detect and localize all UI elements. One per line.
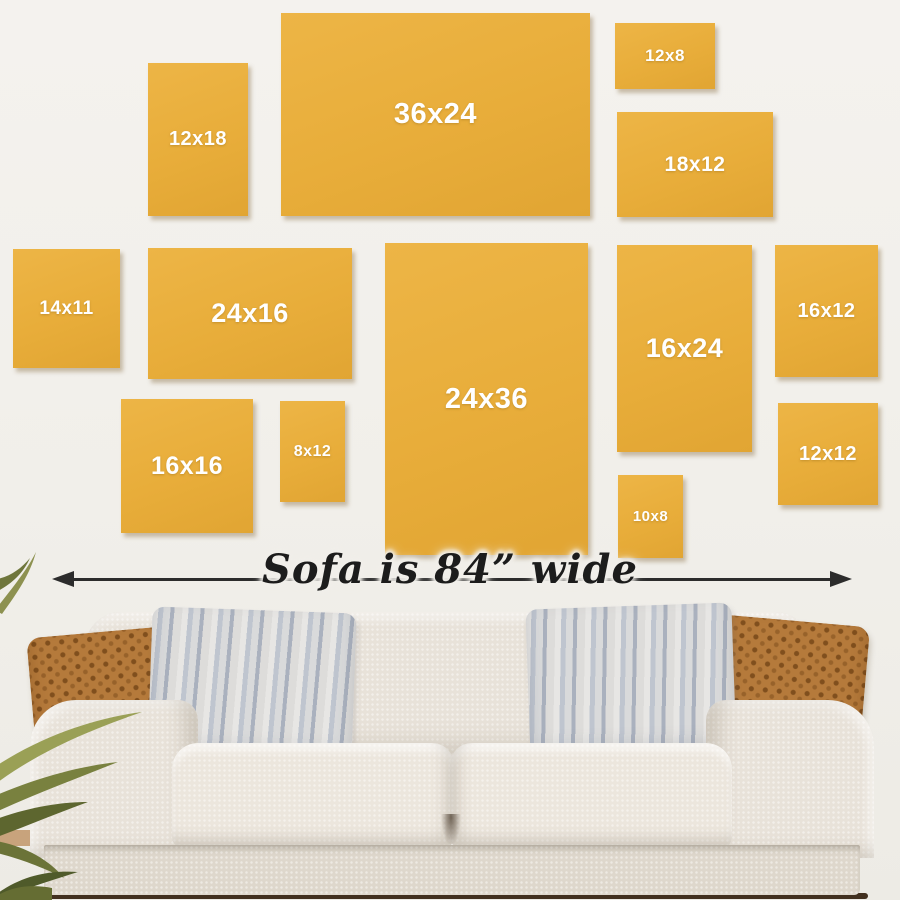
sofa-cushion-gap-shadow: [441, 814, 461, 846]
frame-14x11: 14x11: [13, 249, 120, 368]
frame-12x8: 12x8: [615, 23, 715, 89]
frame-8x12: 8x12: [280, 401, 345, 502]
sofa-seat-cushion-right: [450, 743, 732, 849]
pillow-gray-right: [525, 602, 736, 761]
size-guide-scene: 12x18 36x24 12x8 18x12 14x11 24x16 24x36…: [0, 0, 900, 900]
frame-16x24: 16x24: [617, 245, 752, 452]
frame-12x18: 12x18: [148, 63, 248, 216]
frame-24x16: 24x16: [148, 248, 352, 379]
frame-24x36: 24x36: [385, 243, 588, 555]
sofa-base-skirt: [44, 845, 860, 895]
frame-16x16: 16x16: [121, 399, 253, 533]
frame-36x24: 36x24: [281, 13, 590, 216]
plant-leaves: [0, 540, 150, 900]
frame-16x12: 16x12: [775, 245, 878, 377]
frame-18x12: 18x12: [617, 112, 773, 217]
frame-12x12: 12x12: [778, 403, 878, 505]
sofa-seat-cushion-left: [172, 743, 454, 849]
